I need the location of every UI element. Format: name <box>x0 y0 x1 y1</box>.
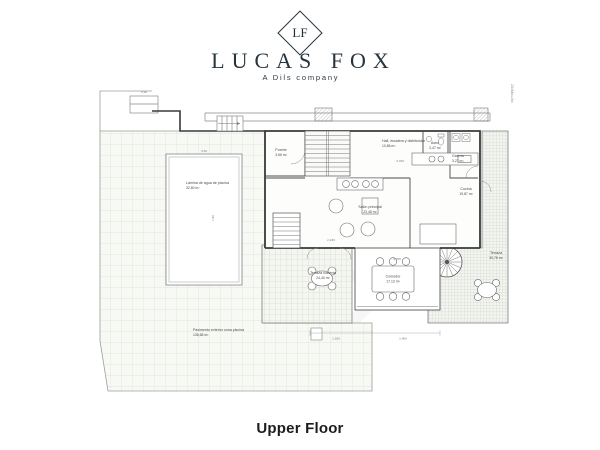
roof-edge <box>205 108 490 121</box>
chimney <box>315 108 332 121</box>
room-area-aseo: 2,47 m² <box>429 146 441 150</box>
room-label-hall: Hall, escalera y distribuidor <box>382 139 426 143</box>
room-label-terraza-cubierta: Terraza cubierta <box>310 271 336 275</box>
svg-text:4,790: 4,790 <box>396 159 404 163</box>
svg-text:136,68 m²: 136,68 m² <box>193 333 209 337</box>
dim-pool-w: 3,52 <box>201 149 207 153</box>
dim-pool-h: 7,52 <box>211 215 215 221</box>
room-label-porche: Porche <box>275 148 286 152</box>
room-label-cocina: Cocina <box>460 187 471 191</box>
room-label-terraza: Terraza <box>490 251 502 255</box>
main-staircase <box>305 131 350 176</box>
svg-text:1,185: 1,185 <box>332 337 340 341</box>
svg-text:Pavimento exterior zona piscin: Pavimento exterior zona piscina <box>193 328 244 332</box>
room-area-salon: 23,48 m² <box>363 210 377 214</box>
pool: Lámina de agua de piscina 32,80 m² <box>166 154 242 285</box>
room-area-terraza: 30,78 m² <box>489 256 503 260</box>
room-label-galeria: Galería <box>452 154 464 158</box>
room-label-salon: Salón principal <box>358 205 382 209</box>
room-label-piscina: Lámina de agua de piscina <box>186 181 229 185</box>
floor-title: Upper Floor <box>0 420 600 437</box>
room-area-hall: 10,86 m² <box>382 144 396 148</box>
room-area-galeria: 3,27 m² <box>452 159 464 163</box>
deck-planter <box>311 328 322 340</box>
room-area-comedor: 17,13 m² <box>386 280 400 284</box>
room-area-terraza-cubierta: 24,40 m² <box>316 276 330 280</box>
logo-monogram: LF <box>285 18 315 48</box>
exterior-side-stairs <box>273 213 300 248</box>
room-area-piscina: 32,80 m² <box>186 186 200 190</box>
room-area-cocina: 19,87 m² <box>459 192 473 196</box>
dim-annex: 0,90 <box>141 90 147 94</box>
brand-name: LUCAS FOX <box>0 48 600 74</box>
room-area-porche: 3,66 m² <box>275 153 287 157</box>
chimney <box>474 108 488 121</box>
terrace-table <box>474 279 499 300</box>
room-label-comedor: Comedor <box>386 275 402 279</box>
floor-plan: LF 0,90 Lámina de agua de piscina 32,80 … <box>0 78 600 418</box>
room-label-aseo: Aseo <box>431 141 439 145</box>
svg-text:4,795: 4,795 <box>393 257 401 261</box>
svg-text:2,230: 2,230 <box>327 238 335 242</box>
plan-side-reference: 234Mpu-lbc <box>510 84 514 103</box>
floor-plan-drawing: LF 0,90 Lámina de agua de piscina 32,80 … <box>0 78 600 418</box>
svg-text:1,400: 1,400 <box>399 337 407 341</box>
exterior-top-stairs <box>217 116 243 131</box>
